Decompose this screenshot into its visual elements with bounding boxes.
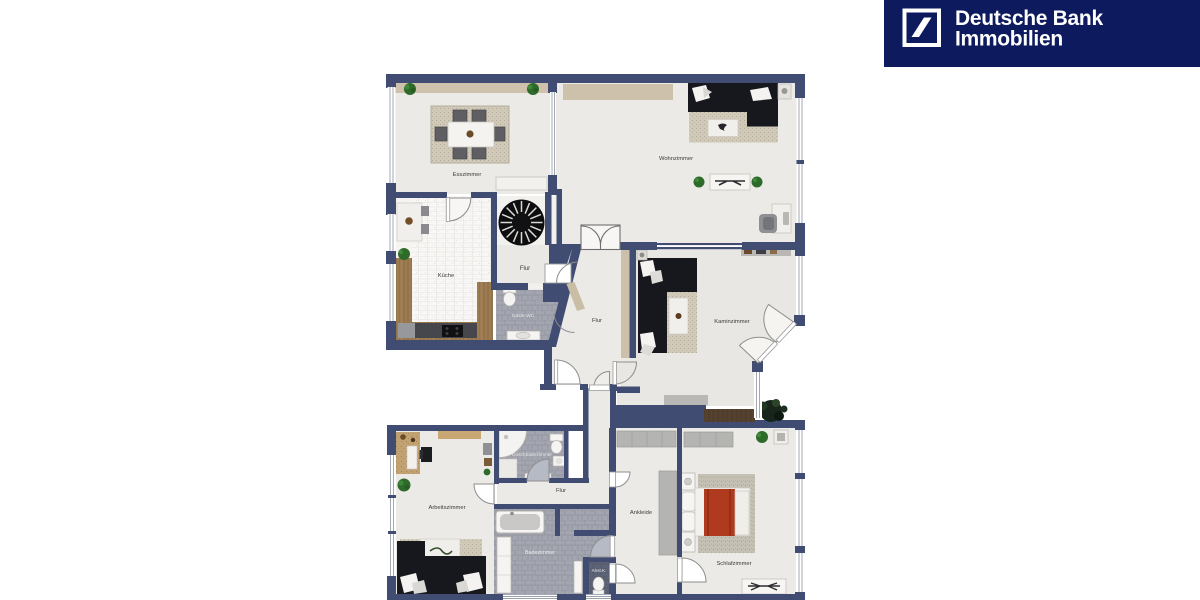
svg-text:Flur: Flur [592, 318, 602, 324]
svg-text:Küche: Küche [438, 273, 454, 279]
svg-text:Wohnzimmer: Wohnzimmer [659, 156, 693, 162]
svg-text:Abst.K.: Abst.K. [592, 568, 607, 573]
svg-text:Gäste-WC: Gäste-WC [512, 313, 535, 319]
svg-text:Schlafzimmer: Schlafzimmer [716, 561, 751, 567]
svg-text:Badezimmer: Badezimmer [525, 550, 555, 556]
svg-text:Esszimmer: Esszimmer [453, 172, 482, 178]
svg-text:Ankleide: Ankleide [630, 510, 652, 516]
svg-text:Duschbadezimmer: Duschbadezimmer [512, 452, 552, 458]
svg-text:Flur: Flur [556, 488, 566, 494]
svg-text:Arbeitszimmer: Arbeitszimmer [428, 505, 465, 511]
svg-text:Immobilien: Immobilien [955, 28, 1063, 51]
svg-text:Flur: Flur [520, 266, 530, 272]
svg-text:Kaminzimmer: Kaminzimmer [714, 319, 749, 325]
